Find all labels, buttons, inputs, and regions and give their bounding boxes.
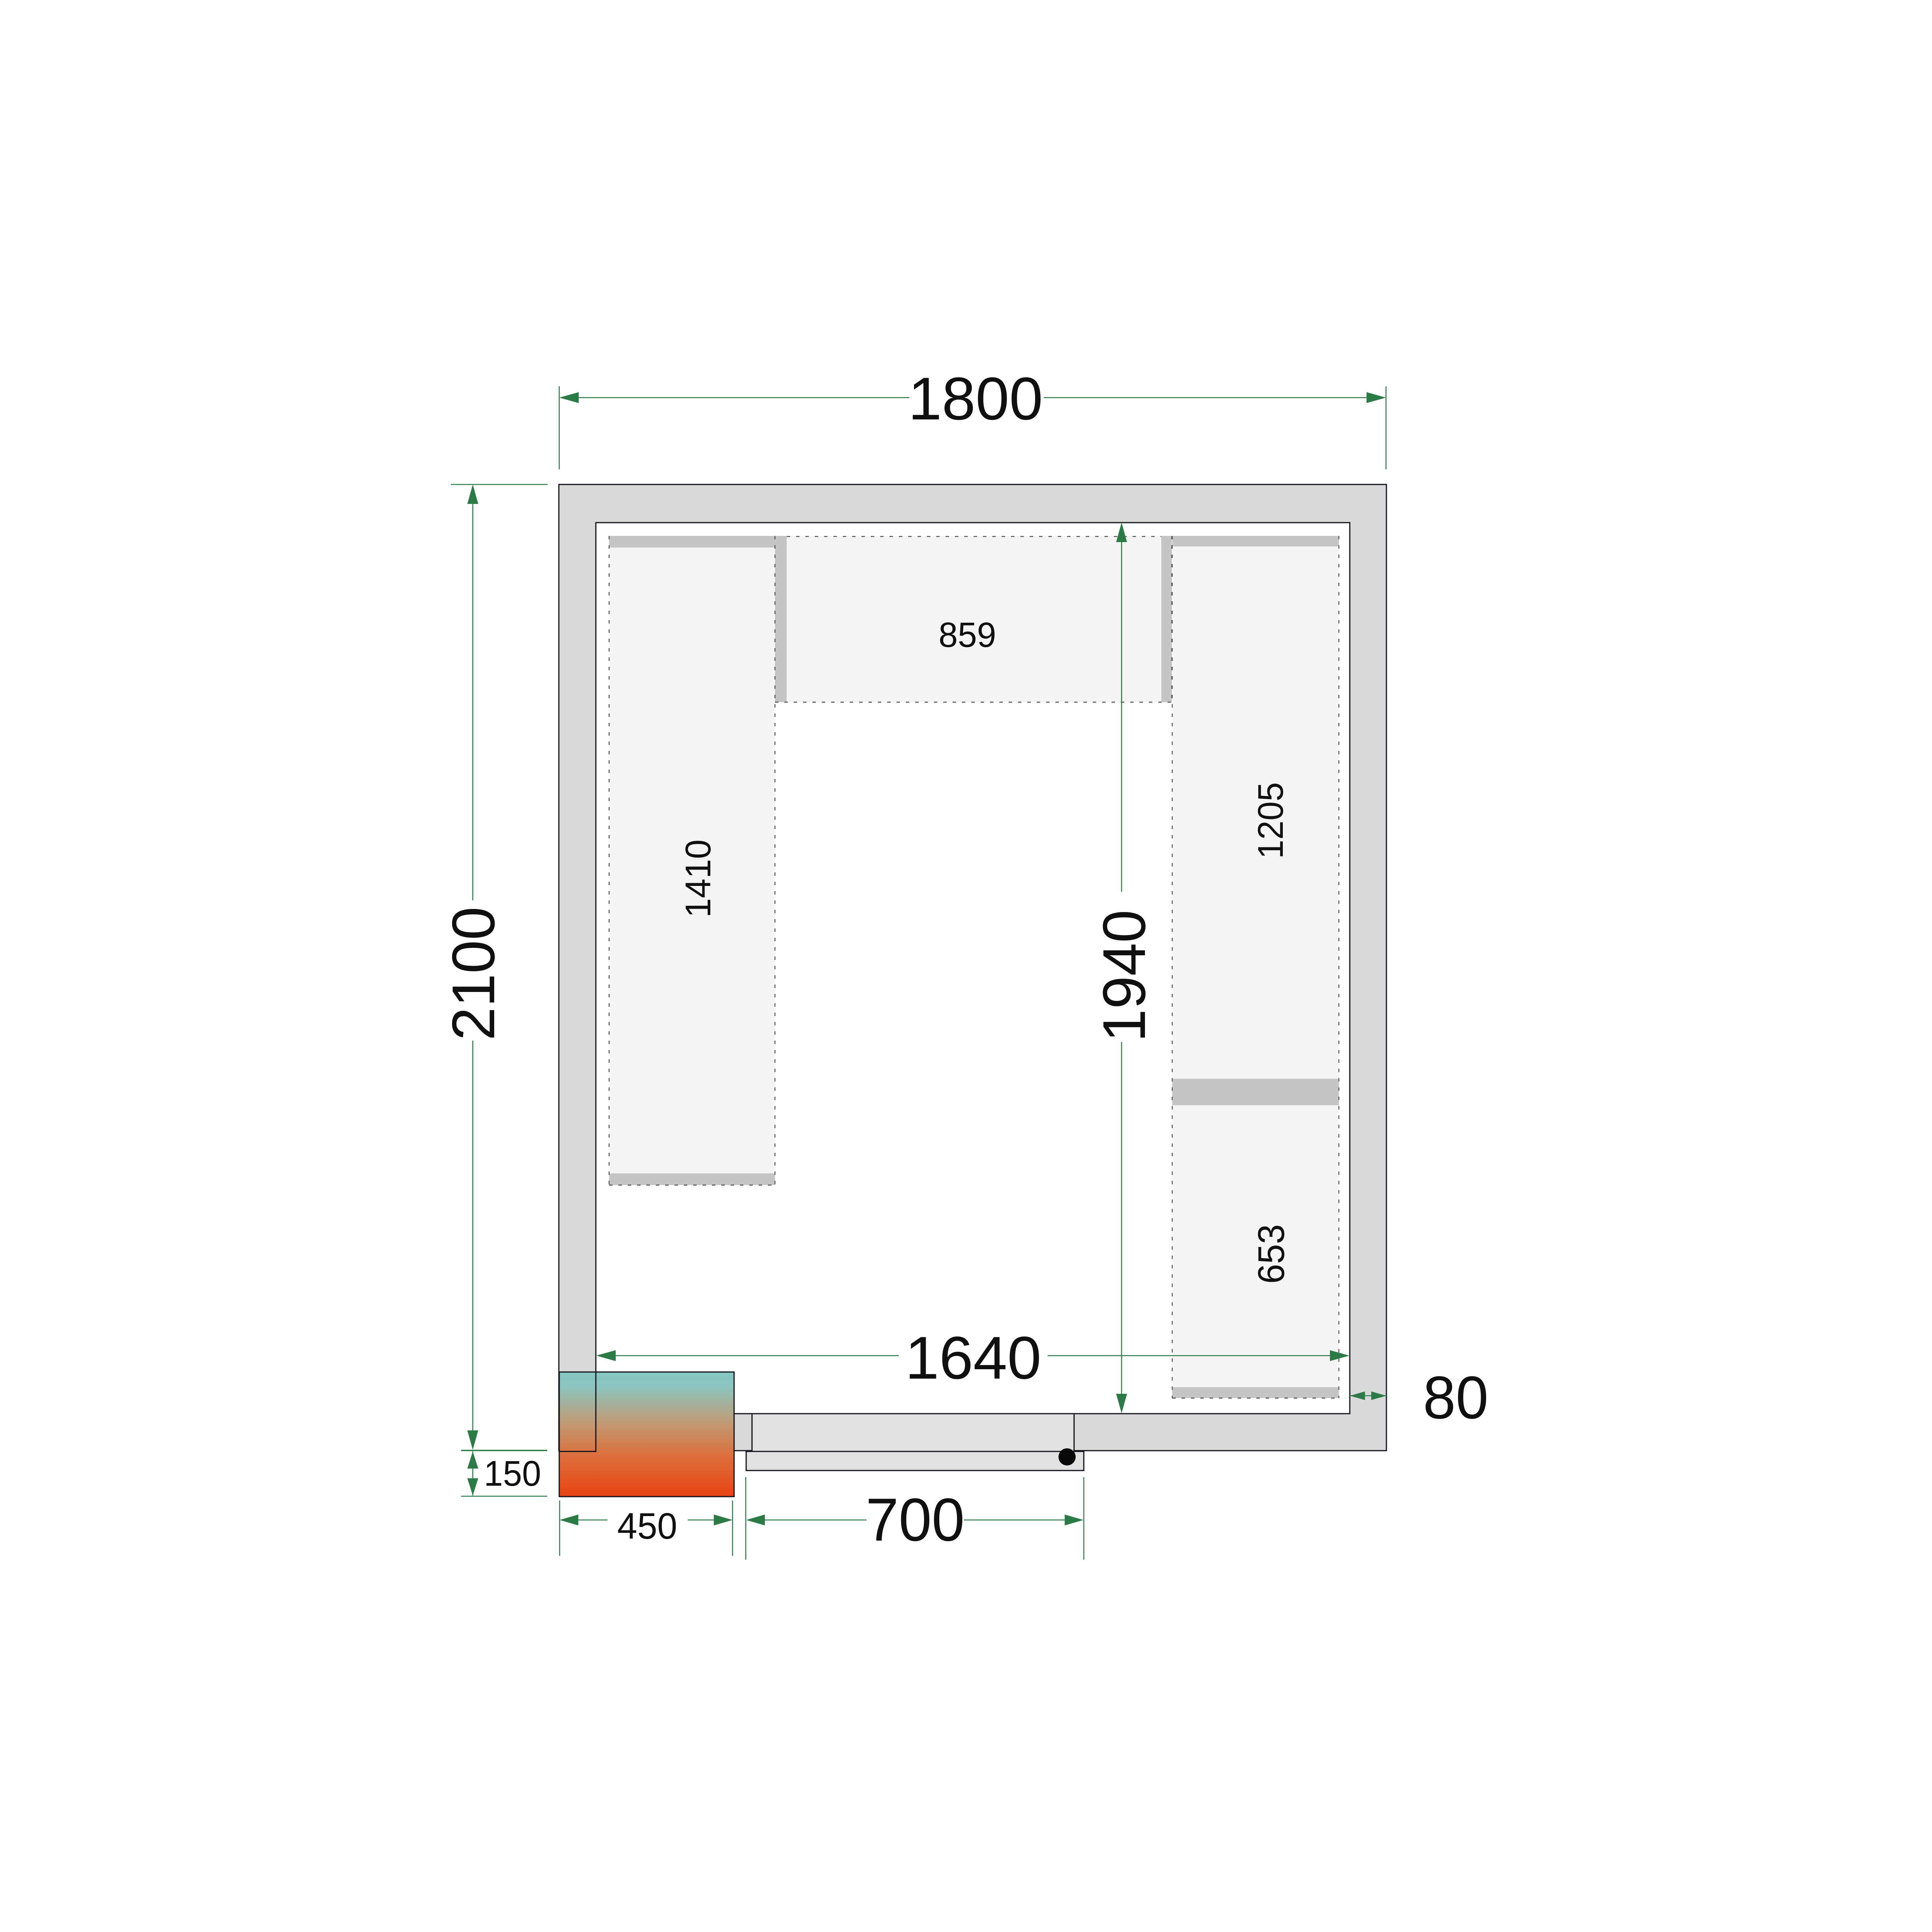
svg-text:1205: 1205 xyxy=(1251,782,1291,859)
svg-text:859: 859 xyxy=(939,616,996,655)
svg-text:1800: 1800 xyxy=(908,365,1043,432)
svg-text:80: 80 xyxy=(1423,1364,1488,1431)
svg-text:450: 450 xyxy=(617,1506,677,1547)
svg-text:700: 700 xyxy=(866,1486,965,1554)
svg-text:1640: 1640 xyxy=(905,1324,1041,1391)
svg-text:1410: 1410 xyxy=(678,840,718,918)
svg-text:1940: 1940 xyxy=(1090,910,1158,1042)
svg-text:150: 150 xyxy=(484,1454,541,1493)
svg-text:653: 653 xyxy=(1250,1224,1292,1284)
svg-text:2100: 2100 xyxy=(440,907,507,1041)
